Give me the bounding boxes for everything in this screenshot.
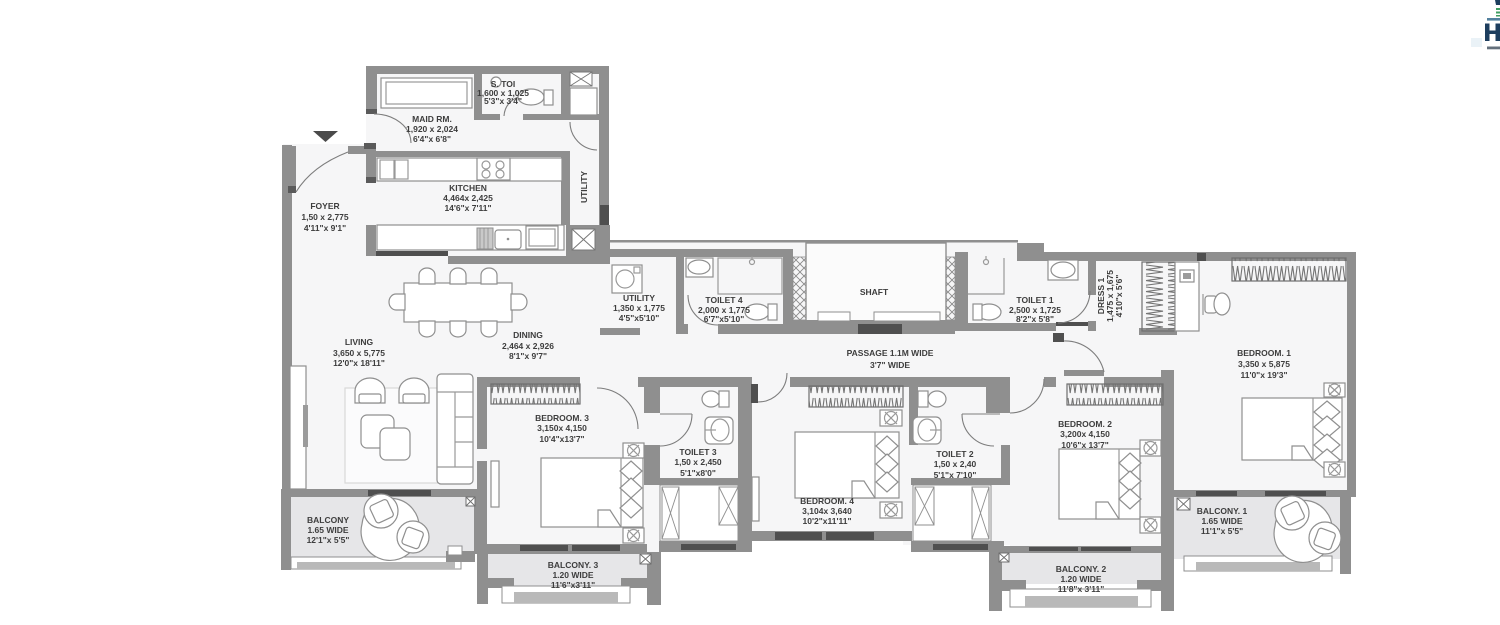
svg-text:DINING: DINING: [513, 330, 543, 340]
svg-text:BALCONY. 3: BALCONY. 3: [548, 560, 599, 570]
svg-text:1.20 WIDE: 1.20 WIDE: [552, 570, 593, 580]
svg-text:5'1"x8'0": 5'1"x8'0": [680, 468, 716, 478]
svg-text:5'3"x 3'4": 5'3"x 3'4": [484, 96, 522, 106]
svg-text:TOILET 1: TOILET 1: [1016, 295, 1053, 305]
svg-text:12'0"x 18'11": 12'0"x 18'11": [333, 358, 385, 368]
svg-text:1.65 WIDE: 1.65 WIDE: [1201, 516, 1242, 526]
svg-text:2,464 x 2,926: 2,464 x 2,926: [502, 341, 554, 351]
svg-text:4,464x 2,425: 4,464x 2,425: [443, 193, 493, 203]
svg-text:12'1"x 5'5": 12'1"x 5'5": [307, 535, 350, 545]
svg-text:11'6"x3'11": 11'6"x3'11": [551, 580, 595, 590]
svg-text:3,150x 4,150: 3,150x 4,150: [537, 423, 587, 433]
svg-text:10'6"x 13'7": 10'6"x 13'7": [1061, 440, 1109, 450]
svg-text:BALCONY. 1: BALCONY. 1: [1197, 506, 1248, 516]
svg-text:KITCHEN: KITCHEN: [449, 183, 487, 193]
svg-text:TOILET 2: TOILET 2: [936, 449, 973, 459]
svg-text:BALCONY. 2: BALCONY. 2: [1056, 564, 1107, 574]
svg-text:6'7"x5'10": 6'7"x5'10": [704, 314, 744, 324]
svg-text:3,350 x 5,875: 3,350 x 5,875: [1238, 359, 1290, 369]
svg-text:10'2"x11'11": 10'2"x11'11": [803, 516, 852, 526]
svg-text:1,50 x 2,40: 1,50 x 2,40: [934, 459, 977, 469]
svg-text:11'0"x 19'3": 11'0"x 19'3": [1240, 370, 1287, 380]
svg-text:BEDROOM. 4: BEDROOM. 4: [800, 496, 854, 506]
svg-text:4'11"x 9'1": 4'11"x 9'1": [304, 223, 346, 233]
svg-text:1,50 x 2,775: 1,50 x 2,775: [301, 212, 349, 222]
svg-text:3,200x 4,150: 3,200x 4,150: [1060, 429, 1110, 439]
svg-text:14'6"x 7'11": 14'6"x 7'11": [444, 203, 491, 213]
svg-text:1.65 WIDE: 1.65 WIDE: [307, 525, 348, 535]
svg-text:BEDROOM. 2: BEDROOM. 2: [1058, 419, 1112, 429]
svg-text:1,920 x 2,024: 1,920 x 2,024: [406, 124, 458, 134]
svg-text:MAID RM.: MAID RM.: [412, 114, 452, 124]
svg-text:4'5"x5'10": 4'5"x5'10": [619, 313, 659, 323]
svg-text:UTILITY: UTILITY: [623, 293, 655, 303]
svg-text:1,350 x 1,775: 1,350 x 1,775: [613, 303, 665, 313]
svg-text:SHAFT: SHAFT: [860, 287, 889, 297]
svg-text:3'7" WIDE: 3'7" WIDE: [870, 360, 910, 370]
svg-text:LIVING: LIVING: [345, 337, 374, 347]
svg-text:8'2"x 5'8": 8'2"x 5'8": [1016, 314, 1054, 324]
svg-text:3,650 x 5,775: 3,650 x 5,775: [333, 348, 385, 358]
svg-text:FOYER: FOYER: [310, 201, 339, 211]
svg-text:4'10"x 5'6": 4'10"x 5'6": [1114, 275, 1124, 318]
svg-text:BALCONY: BALCONY: [307, 515, 349, 525]
svg-text:10'4"x13'7": 10'4"x13'7": [539, 434, 584, 444]
svg-text:11'1"x 5'5": 11'1"x 5'5": [1201, 526, 1243, 536]
svg-text:UTILITY: UTILITY: [579, 171, 589, 203]
svg-text:8'1"x 9'7": 8'1"x 9'7": [509, 351, 547, 361]
svg-text:3,104x 3,640: 3,104x 3,640: [802, 506, 852, 516]
svg-text:BEDROOM. 1: BEDROOM. 1: [1237, 348, 1291, 358]
svg-text:TOILET 4: TOILET 4: [705, 295, 742, 305]
svg-text:1,50 x 2,450: 1,50 x 2,450: [674, 457, 722, 467]
svg-text:BEDROOM. 3: BEDROOM. 3: [535, 413, 589, 423]
svg-text:1.20 WIDE: 1.20 WIDE: [1060, 574, 1101, 584]
svg-text:TOILET 3: TOILET 3: [679, 447, 716, 457]
svg-text:6'4"x 6'8": 6'4"x 6'8": [413, 134, 451, 144]
svg-text:11'8"x 3'11": 11'8"x 3'11": [1058, 584, 1105, 594]
svg-text:PASSAGE 1.1M WIDE: PASSAGE 1.1M WIDE: [847, 348, 934, 358]
svg-text:5'1"x 7'10": 5'1"x 7'10": [934, 470, 977, 480]
